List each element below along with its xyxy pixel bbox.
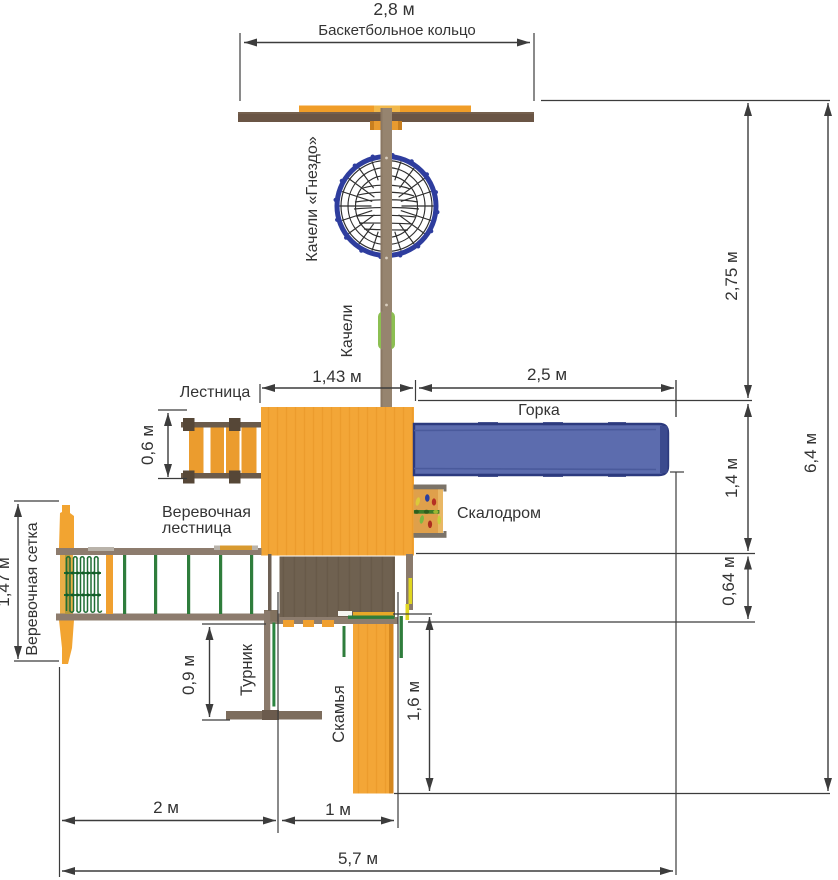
svg-text:Качели: Качели <box>339 305 356 358</box>
svg-text:Качели «Гнездо»: Качели «Гнездо» <box>304 136 321 262</box>
svg-text:Веревочная: Веревочная <box>162 504 251 521</box>
svg-text:0,64 м: 0,64 м <box>719 556 738 606</box>
svg-text:0,9 м: 0,9 м <box>179 655 198 695</box>
svg-text:2,8 м: 2,8 м <box>373 0 414 19</box>
svg-text:Веревочная сетка: Веревочная сетка <box>24 522 41 655</box>
svg-text:1,47 м: 1,47 м <box>0 557 13 607</box>
svg-text:6,4 м: 6,4 м <box>801 433 820 473</box>
svg-text:0,6 м: 0,6 м <box>138 425 157 465</box>
svg-text:Скалодром: Скалодром <box>457 505 541 522</box>
svg-text:лестница: лестница <box>162 520 232 537</box>
svg-text:Скамья: Скамья <box>330 685 348 743</box>
svg-text:Лестница: Лестница <box>180 384 251 401</box>
svg-text:Турник: Турник <box>238 643 256 696</box>
svg-text:Горка: Горка <box>518 402 560 419</box>
svg-text:2,75 м: 2,75 м <box>722 251 741 301</box>
svg-text:Баскетбольное кольцо: Баскетбольное кольцо <box>318 22 476 39</box>
svg-text:1,4 м: 1,4 м <box>722 458 741 498</box>
svg-text:1,43 м: 1,43 м <box>312 367 362 386</box>
svg-text:1 м: 1 м <box>325 800 351 819</box>
svg-text:5,7 м: 5,7 м <box>338 849 378 868</box>
svg-text:2 м: 2 м <box>153 798 179 817</box>
svg-text:2,5 м: 2,5 м <box>527 365 567 384</box>
svg-text:1,6 м: 1,6 м <box>404 681 423 721</box>
